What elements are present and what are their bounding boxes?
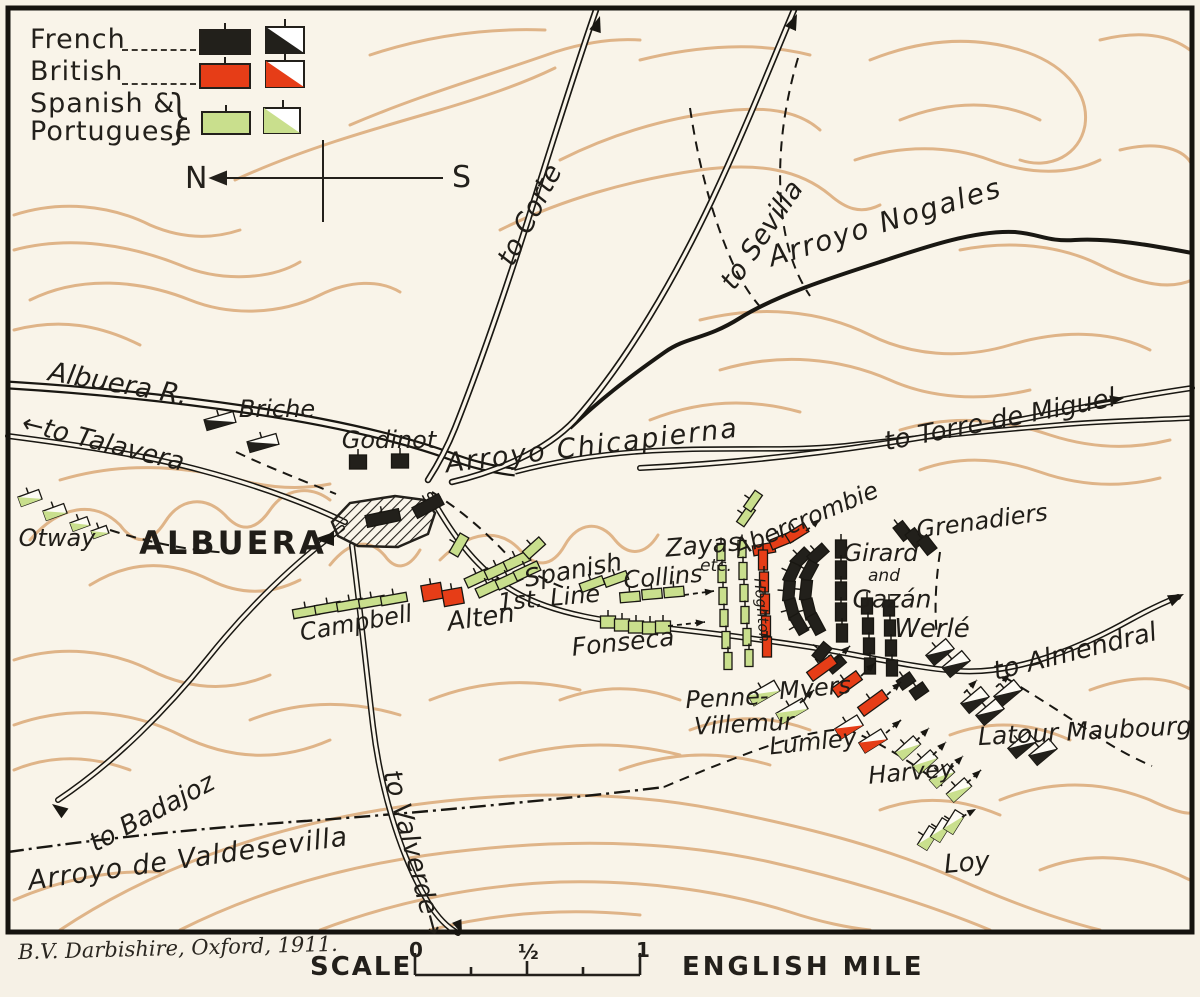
legend-label-spanish-1: Spanish & xyxy=(30,88,175,119)
scale-unit: ENGLISH MILE xyxy=(682,952,925,982)
compass-south-label: S xyxy=(452,160,471,195)
scale-tick-1: 1 xyxy=(636,938,650,962)
battle-map-figure: French British Spanish & Portuguese } N … xyxy=(0,0,1200,997)
scale-tick-0: 0 xyxy=(409,938,423,962)
legend-label-french: French xyxy=(30,24,126,55)
legend-leader-french xyxy=(122,48,196,51)
scale-label: SCALE xyxy=(310,952,412,982)
compass-north-label: N xyxy=(185,161,207,196)
scale-tick-half: ½ xyxy=(518,940,539,964)
legend-brace: } xyxy=(162,82,199,150)
legend-label-british: British xyxy=(30,56,123,87)
